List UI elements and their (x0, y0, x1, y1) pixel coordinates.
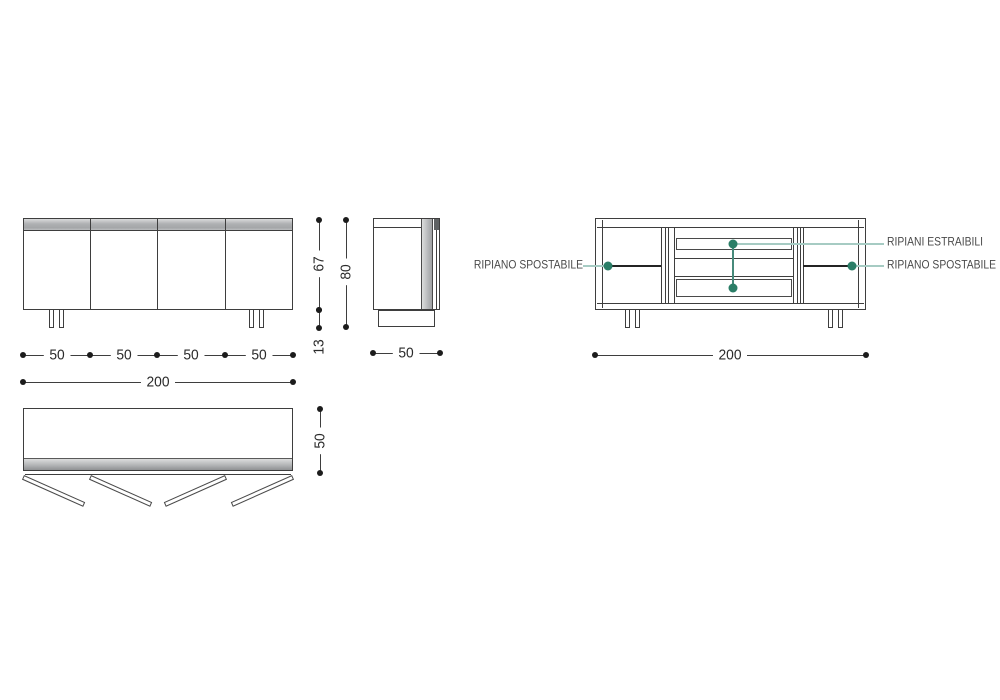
annotation-left-shelf: RIPIANO SPOSTABILE (474, 260, 583, 272)
dim-dot (87, 352, 93, 358)
dim-label-overall-height: 80 (339, 259, 354, 285)
dim-dot (316, 217, 322, 223)
internal-left-leg (625, 310, 641, 328)
dim-dot (20, 352, 26, 358)
leader-pullout-shelves (733, 243, 884, 245)
dim-dot (154, 352, 160, 358)
open-door-leaf-2 (89, 475, 152, 507)
top-front-band (24, 458, 292, 471)
dim-dot (317, 406, 323, 412)
marker-dot-pullout-top (729, 240, 738, 249)
dim-label-leg-height: 13 (312, 334, 327, 360)
internal-right-partition (793, 227, 794, 303)
centre-fixed-line-1 (675, 258, 793, 259)
top-front-edge-line (25, 474, 291, 475)
dim-dot (290, 379, 296, 385)
side-door-line (436, 219, 437, 309)
dim-dot (222, 352, 228, 358)
dim-label-body-height: 67 (312, 251, 327, 277)
dim-dot (20, 379, 26, 385)
dim-dot (343, 217, 349, 223)
front-door-divider (157, 218, 158, 310)
dim-label-door-width-4: 50 (246, 348, 272, 363)
open-door-leaf-4 (231, 475, 294, 507)
dim-dot (316, 325, 322, 331)
dim-label-internal-width: 200 (713, 348, 747, 363)
front-right-leg (249, 310, 265, 328)
internal-right-leg (828, 310, 844, 328)
open-door-leaf-3 (164, 475, 227, 507)
marker-dot-pullout-bottom (729, 284, 738, 293)
centre-fixed-line-2 (675, 276, 793, 277)
annotation-right-shelf: RIPIANO SPOSTABILE (887, 260, 996, 272)
side-top-cap (434, 219, 439, 230)
leader-right-shelf (852, 265, 884, 267)
side-front-band (421, 219, 433, 309)
marker-dot-right-shelf (848, 262, 857, 271)
dim-label-door-width-2: 50 (111, 348, 137, 363)
open-door-leaf-1 (22, 475, 85, 507)
internal-right-partition (800, 227, 801, 303)
internal-left-partition (668, 227, 669, 303)
front-door-divider (225, 218, 226, 310)
front-door-divider (90, 218, 91, 310)
dim-dot (343, 324, 349, 330)
dim-label-total-width: 200 (141, 375, 175, 390)
internal-right-partition (797, 227, 798, 303)
dim-dot (316, 307, 322, 313)
dim-dot (290, 352, 296, 358)
dim-dot (592, 352, 598, 358)
dim-dot (370, 350, 376, 356)
dim-label-top-depth: 50 (313, 428, 328, 454)
side-base (378, 310, 435, 327)
front-left-leg (49, 310, 65, 328)
internal-left-partition (674, 227, 675, 303)
dim-dot (437, 350, 443, 356)
dim-label-door-width-1: 50 (44, 348, 70, 363)
pullout-connector-line (732, 244, 734, 288)
internal-bottom-inner (597, 303, 864, 304)
internal-left-partition (665, 227, 666, 303)
technical-drawing-sheet: 50 50 50 50 200 67 13 80 (0, 0, 1000, 700)
internal-left-partition (661, 227, 662, 303)
side-top-inner-line (374, 227, 421, 228)
dim-dot (863, 352, 869, 358)
internal-right-wall-inner (858, 220, 859, 308)
dim-label-door-width-3: 50 (178, 348, 204, 363)
internal-top-inner (597, 227, 864, 228)
dim-label-depth: 50 (393, 346, 419, 361)
dim-dot (317, 470, 323, 476)
marker-dot-left-shelf (604, 262, 613, 271)
annotation-pullout-shelves: RIPIANI ESTRAIBILI (887, 237, 983, 249)
